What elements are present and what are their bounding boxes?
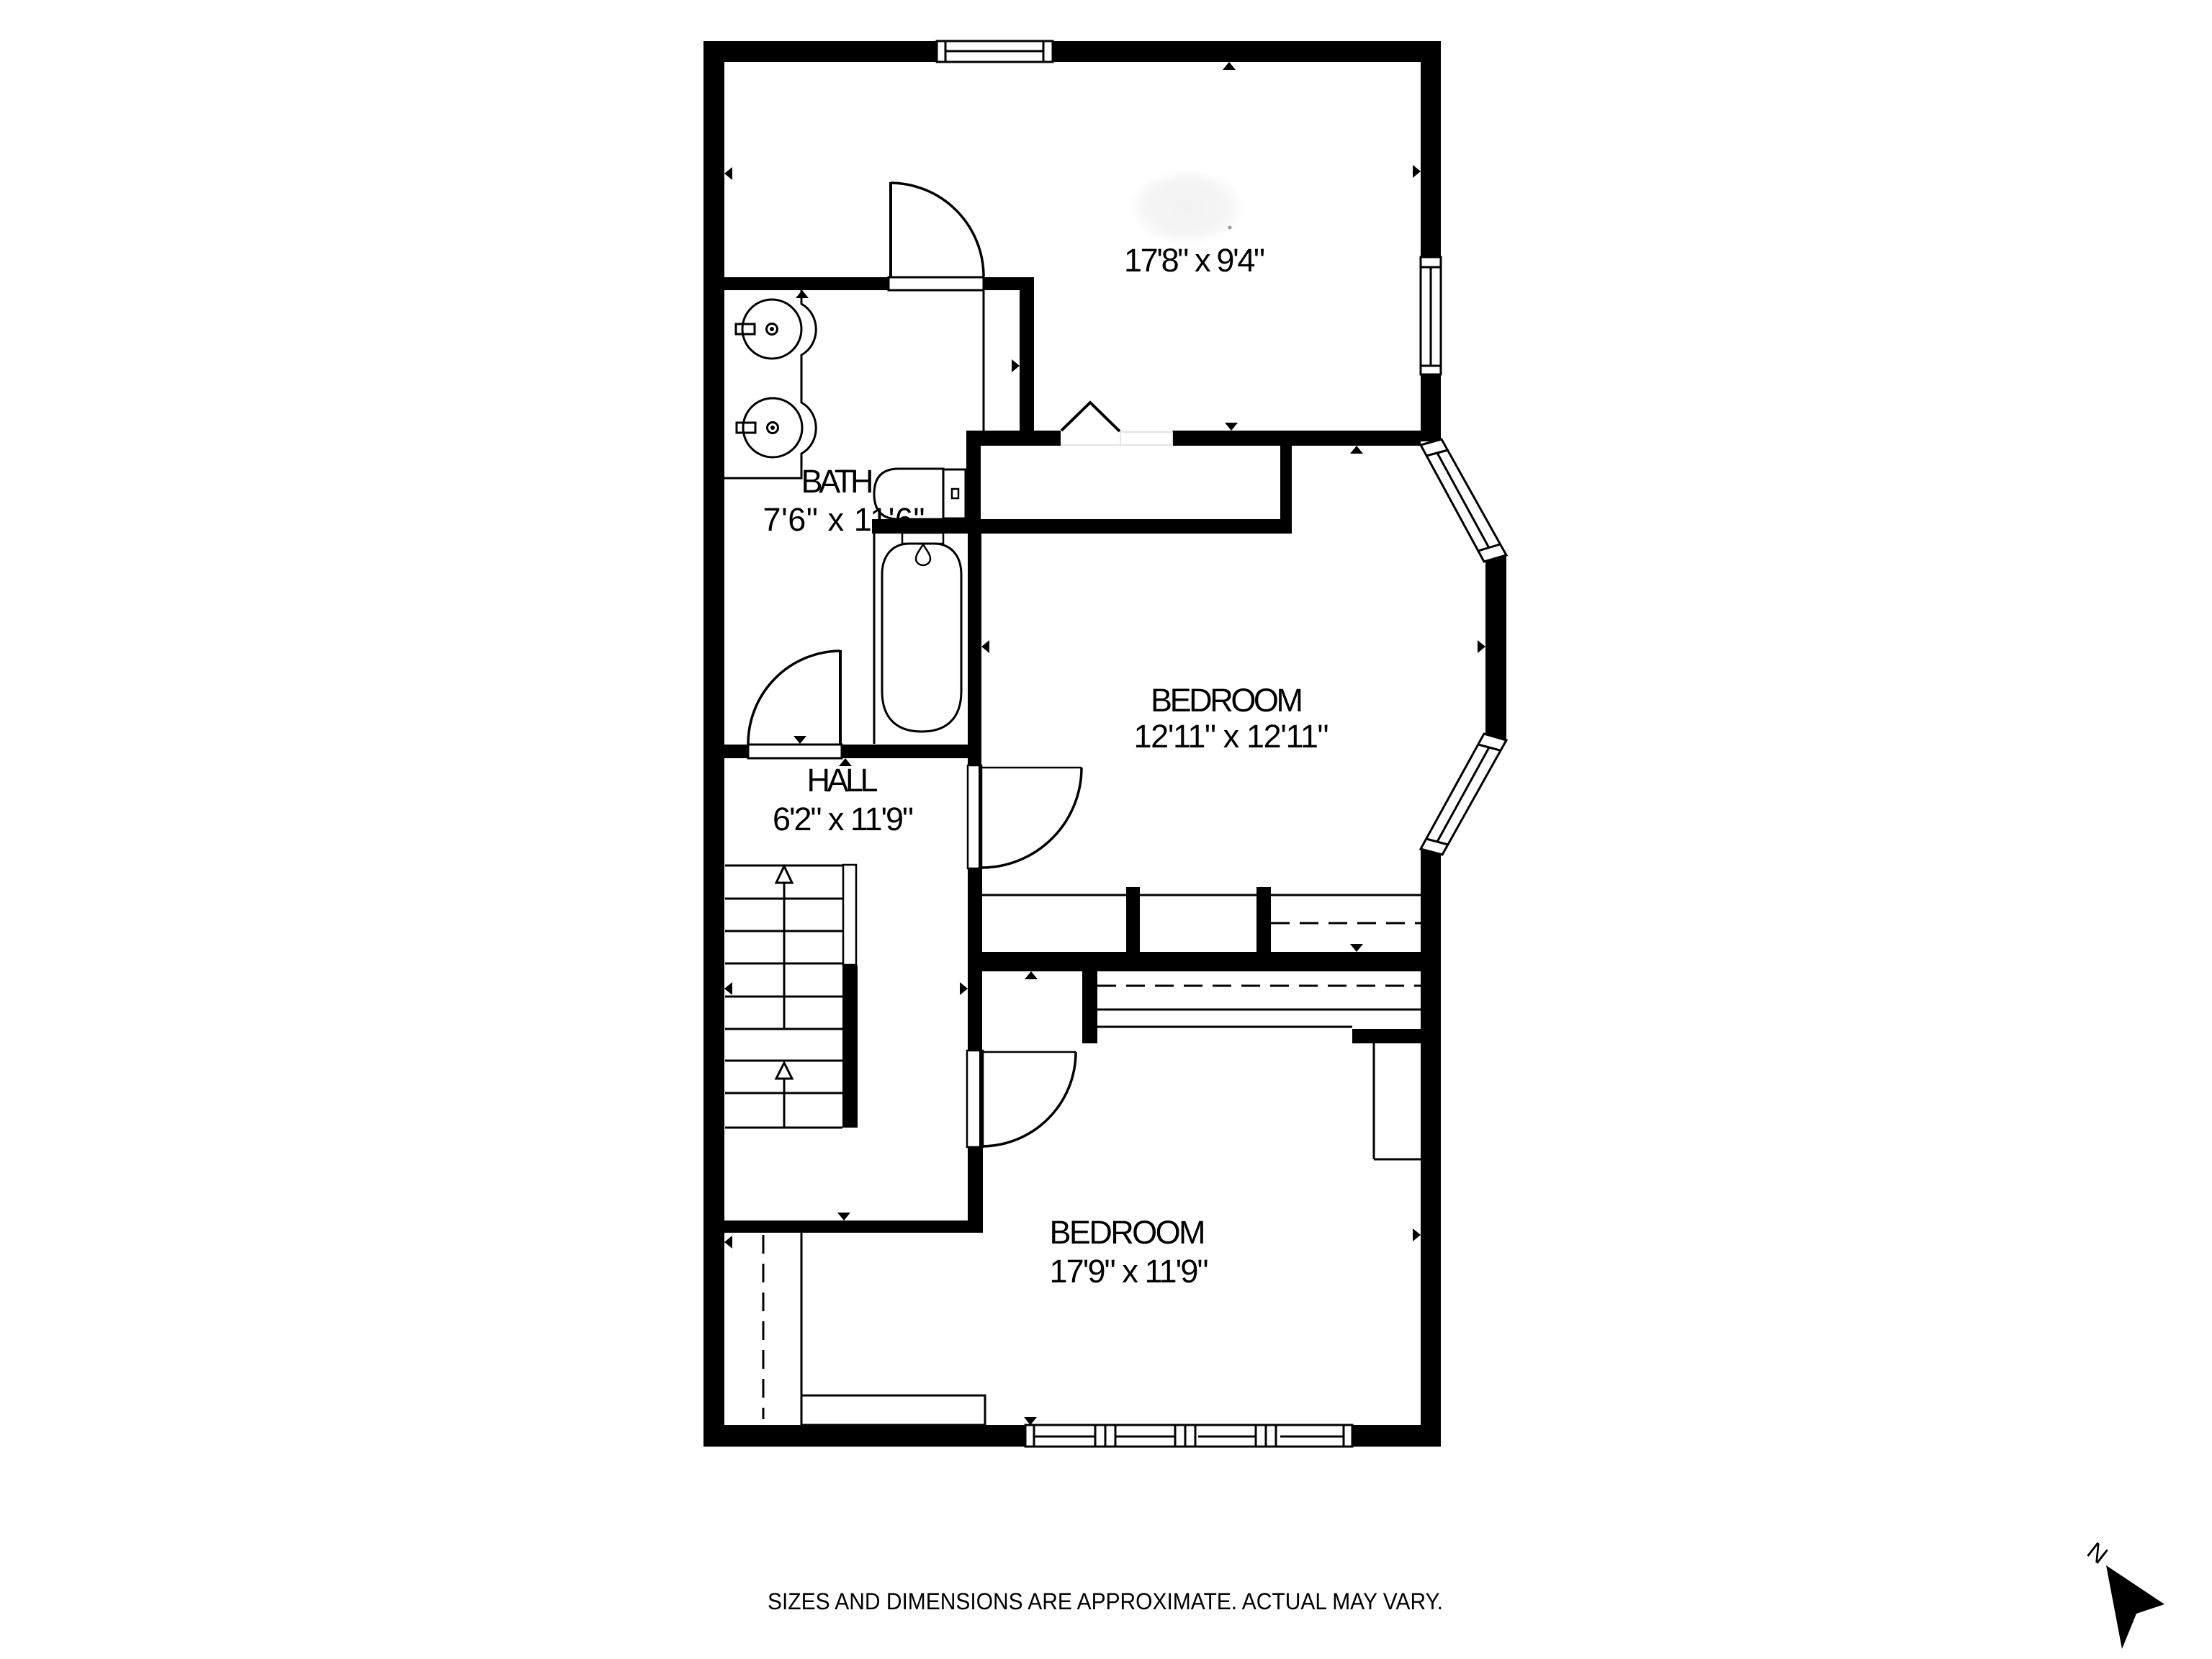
svg-text:17'9" x 11'9": 17'9" x 11'9" [1050,1253,1209,1290]
svg-text:SIZES AND DIMENSIONS ARE APPRO: SIZES AND DIMENSIONS ARE APPROXIMATE. AC… [768,1588,1443,1614]
svg-text:BEDROOM: BEDROOM [1050,1214,1206,1251]
svg-text:17'8" x 9'4": 17'8" x 9'4" [1124,242,1265,279]
svg-text:BATH: BATH [801,463,874,500]
svg-text:6'2" x 11'9": 6'2" x 11'9" [773,801,914,837]
svg-text:7'6" x 11'6": 7'6" x 11'6" [763,501,925,538]
svg-text:BEDROOM: BEDROOM [1151,682,1303,719]
svg-text:HALL: HALL [807,762,878,799]
svg-text:12'11" x 12'11": 12'11" x 12'11" [1134,718,1329,755]
